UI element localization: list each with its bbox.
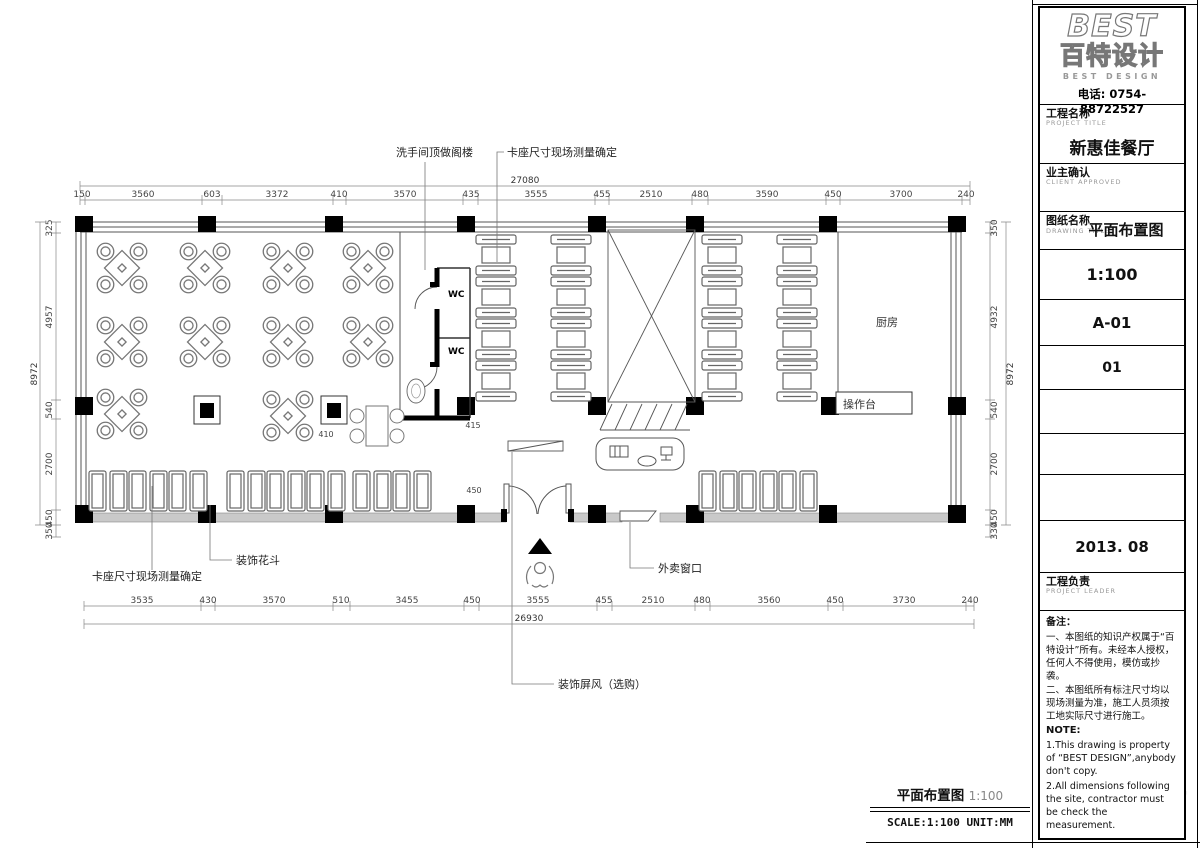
svg-text:510: 510 (332, 596, 349, 606)
kitchen-label: 厨房 (876, 316, 898, 329)
drawing-name: 平面布置图 (1074, 219, 1178, 240)
callout-booth-bottom: 卡座尺寸现场测量确定 (92, 569, 202, 583)
empty-row-2 (1040, 434, 1184, 475)
svg-text:3555: 3555 (525, 190, 548, 200)
svg-text:240: 240 (961, 596, 978, 606)
inner-dim-450: 450 (466, 486, 481, 495)
notes-title: 备注： (1046, 616, 1178, 630)
note-cn-2: 二、本图纸所有标注尺寸均以现场测量为准，施工人员须按工地实际尺寸进行施工。 (1046, 684, 1178, 723)
svg-text:3730: 3730 (893, 596, 916, 606)
brand-name-en: BEST DESIGN (1046, 72, 1178, 81)
floor-plan: WC WC 厨房 操作台 (0, 0, 1030, 848)
svg-text:3570: 3570 (394, 190, 417, 200)
dim-labels-right: 350 4932 540 2700 450 330 8972 (990, 219, 1016, 539)
brand-logo: BEST (1046, 12, 1178, 42)
date-value: 2013. 08 (1075, 538, 1149, 556)
project-name: 新惠佳餐厅 (1046, 134, 1178, 159)
svg-text:450: 450 (824, 190, 841, 200)
svg-text:3372: 3372 (266, 190, 289, 200)
svg-text:430: 430 (199, 596, 216, 606)
brand-block: BEST 百特设计 BEST DESIGN 电话: 0754-88722527 (1040, 8, 1184, 105)
svg-text:540: 540 (45, 401, 55, 418)
svg-text:2510: 2510 (642, 596, 665, 606)
footer-plan-title: 平面布置图 (897, 788, 965, 804)
project-title-row: 工程名称 PROJECT TITLE 新惠佳餐厅 (1040, 105, 1184, 164)
sheet-top-edge (1032, 4, 1198, 5)
callout-planter: 装饰花斗 (236, 553, 280, 567)
project-leader-row: 工程负责 PROJECT LEADER (1040, 573, 1184, 611)
note-cn-1: 一、本图纸的知识产权属于“百特设计”所有。未经本人授权，任何人不得使用，模仿或抄… (1046, 631, 1178, 683)
svg-text:410: 410 (330, 190, 347, 200)
empty-row-3 (1040, 475, 1184, 521)
notes-block: 备注： 一、本图纸的知识产权属于“百特设计”所有。未经本人授权，任何人不得使用，… (1040, 611, 1184, 838)
svg-text:240: 240 (957, 190, 974, 200)
footer-plan-scale: 1:100 (969, 789, 1004, 803)
svg-text:3455: 3455 (396, 596, 419, 606)
dim-labels-bottom: 3535 430 3570 510 3455 450 3555 455 2510… (131, 596, 979, 624)
notes-en-title: NOTE: (1046, 724, 1178, 738)
svg-text:350: 350 (990, 219, 1000, 236)
svg-text:2700: 2700 (45, 452, 55, 475)
footer-scale-box: 平面布置图 1:100 SCALE:1:100 UNIT:MM (868, 781, 1032, 841)
svg-text:150: 150 (73, 190, 90, 200)
svg-text:325: 325 (45, 219, 55, 236)
svg-text:3535: 3535 (131, 596, 154, 606)
svg-text:27080: 27080 (511, 176, 540, 186)
svg-text:603: 603 (203, 190, 220, 200)
scale-row: 1:100 (1040, 250, 1184, 300)
booth-rows-bottom (89, 471, 817, 511)
svg-text:3590: 3590 (756, 190, 779, 200)
wc-label-1: WC (448, 290, 465, 300)
dim-labels-top: 150 3560 603 3372 410 3570 435 3555 455 … (73, 176, 974, 200)
page-number-row: 01 (1040, 346, 1184, 390)
dim-labels-left: 325 4957 540 2700 450 350 8972 (30, 219, 55, 539)
sheet-divider-line (1032, 0, 1033, 848)
drawing-title-row: 图纸名称 DRAWING TITLE 平面布置图 (1040, 212, 1184, 249)
svg-text:2510: 2510 (640, 190, 663, 200)
drawing-number: A-01 (1093, 314, 1132, 332)
svg-text:450: 450 (826, 596, 843, 606)
svg-text:8972: 8972 (30, 363, 40, 386)
svg-text:435: 435 (462, 190, 479, 200)
svg-text:4932: 4932 (990, 306, 1000, 329)
svg-text:3555: 3555 (527, 596, 550, 606)
drawing-number-row: A-01 (1040, 300, 1184, 346)
dining-tables (97, 243, 404, 446)
svg-text:330: 330 (990, 522, 1000, 539)
note-en-1: 1.This drawing is property of “BEST DESI… (1046, 739, 1178, 778)
stair-shaft (600, 230, 695, 430)
leader-label-en: PROJECT LEADER (1046, 588, 1178, 596)
entry-marker (527, 538, 554, 587)
svg-text:3560: 3560 (132, 190, 155, 200)
sheet-bottom-edge (866, 842, 1200, 843)
callout-booth-top: 卡座尺寸现场测量确定 (507, 145, 617, 159)
svg-text:3700: 3700 (890, 190, 913, 200)
brand-name-cn: 百特设计 (1046, 42, 1178, 71)
svg-text:8972: 8972 (1006, 363, 1016, 386)
footer-scale-unit: SCALE:1:100 UNIT:MM (868, 816, 1032, 829)
leader-label-cn: 工程负责 (1046, 576, 1178, 588)
client-label-en: CLIENT APPROVED (1046, 179, 1178, 187)
wc-block (398, 232, 470, 418)
svg-text:350: 350 (45, 522, 55, 539)
callout-toilet-loft: 洗手间顶做阁楼 (396, 145, 473, 159)
drawing-sheet: WC WC 厨房 操作台 (0, 0, 1200, 848)
date-row: 2013. 08 (1040, 521, 1184, 573)
sheet-right-edge (1197, 0, 1198, 848)
takeout-window (620, 511, 656, 521)
callout-screen: 装饰屏风（选购） (558, 677, 646, 691)
inner-dim-415: 415 (465, 421, 480, 430)
svg-text:4957: 4957 (45, 306, 55, 329)
title-block: BEST 百特设计 BEST DESIGN 电话: 0754-88722527 … (1038, 6, 1186, 840)
wc-label-2: WC (448, 347, 465, 357)
page-number: 01 (1102, 360, 1121, 376)
note-en-2: 2.All dimensions following the site, con… (1046, 780, 1178, 832)
scale-value: 1:100 (1087, 265, 1138, 284)
counter-label: 操作台 (843, 397, 876, 411)
svg-text:540: 540 (990, 401, 1000, 418)
cashier-counter (596, 438, 684, 470)
svg-text:2700: 2700 (990, 452, 1000, 475)
callout-takeout: 外卖窗口 (658, 561, 702, 575)
svg-text:450: 450 (463, 596, 480, 606)
inner-dim-410: 410 (318, 430, 333, 439)
svg-text:3560: 3560 (758, 596, 781, 606)
booth-rows-vertical (476, 235, 817, 401)
footer-rule (870, 807, 1030, 812)
svg-text:480: 480 (693, 596, 710, 606)
prep-counter: 操作台 (836, 392, 912, 414)
client-approved-row: 业主确认 CLIENT APPROVED (1040, 164, 1184, 213)
svg-text:26930: 26930 (515, 614, 544, 624)
svg-text:455: 455 (595, 596, 612, 606)
svg-text:3570: 3570 (263, 596, 286, 606)
decor-screen (508, 441, 563, 451)
empty-row-1 (1040, 390, 1184, 434)
svg-text:480: 480 (691, 190, 708, 200)
project-label-en: PROJECT TITLE (1046, 120, 1178, 128)
svg-text:455: 455 (593, 190, 610, 200)
